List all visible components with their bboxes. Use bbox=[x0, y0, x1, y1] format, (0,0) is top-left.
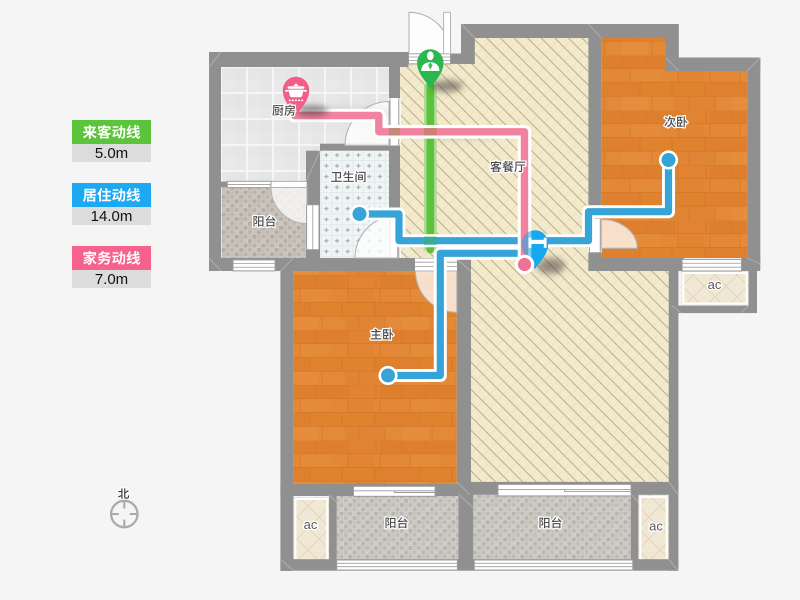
svg-text:ac: ac bbox=[708, 277, 722, 292]
svg-text:ac: ac bbox=[649, 519, 663, 534]
svg-text:5.0m: 5.0m bbox=[95, 145, 128, 162]
svg-text:ac: ac bbox=[304, 517, 318, 532]
svg-text:14.0m: 14.0m bbox=[91, 208, 133, 225]
svg-text:7.0m: 7.0m bbox=[95, 271, 128, 288]
